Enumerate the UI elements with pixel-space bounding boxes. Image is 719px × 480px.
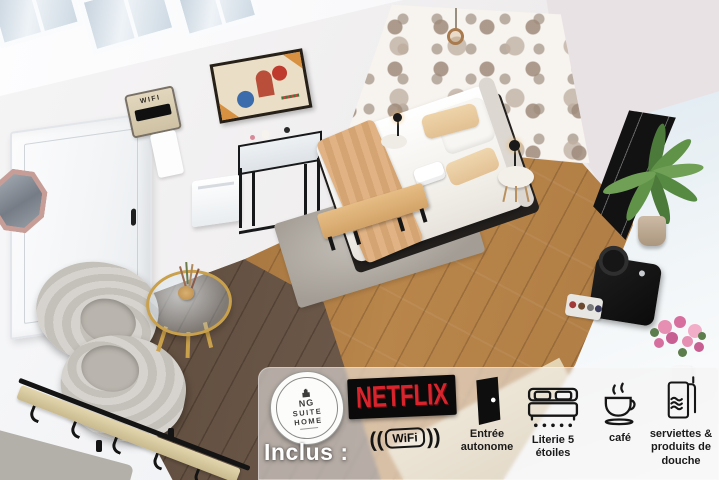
art-squiggle xyxy=(281,94,299,100)
table-lamp xyxy=(397,120,399,136)
electric-heater xyxy=(192,175,240,228)
listing-photo: WIFI xyxy=(0,0,719,480)
window-mullion xyxy=(212,0,226,24)
flower xyxy=(654,338,664,348)
amenity-towels: serviettes & produits de douche xyxy=(643,373,719,477)
wifi-logo: (( WiFi )) xyxy=(351,420,458,456)
amenity-label: café xyxy=(609,432,631,445)
badge-divider xyxy=(300,427,318,430)
amenity-icon-wrap xyxy=(468,373,506,425)
coffee-capsule xyxy=(586,304,594,312)
brand-logo-ring: NG SUITE HOME xyxy=(273,374,341,442)
amenity-icon-wrap xyxy=(597,377,643,429)
coat-hook xyxy=(151,453,167,471)
coat-hook xyxy=(69,421,85,439)
pendant-cord xyxy=(455,8,457,30)
table-lamp-shade xyxy=(393,113,402,122)
skylight-window xyxy=(0,0,84,49)
decor-object xyxy=(284,127,290,133)
amenity-bedding: Literie 5 étoiles xyxy=(515,373,591,477)
nightstand-leg xyxy=(515,186,517,202)
wifi-signal-arcs-left: (( xyxy=(369,429,384,451)
amenity-icon-wrap xyxy=(660,373,702,425)
amenity-self-checkin: Entrée autonome xyxy=(452,373,522,477)
flower-leaf xyxy=(650,328,659,337)
potted-palm-plant xyxy=(604,116,704,252)
console-table-leg xyxy=(239,168,242,228)
flower xyxy=(666,332,678,344)
table-lamp-shade xyxy=(509,140,520,151)
art-blue-circle xyxy=(236,90,256,110)
skylight-window xyxy=(78,0,179,55)
amenity-label: serviettes & produits de douche xyxy=(643,428,719,468)
amenity-label: Entrée autonome xyxy=(452,428,522,455)
coat-hook xyxy=(28,405,44,423)
flower-leaf xyxy=(678,348,687,357)
pendant-light xyxy=(447,28,464,45)
netflix-logo: NETFLIX xyxy=(347,375,457,420)
towel-icon xyxy=(660,375,702,425)
netflix-logo-text: NETFLIX xyxy=(355,378,448,417)
coffee-capsule xyxy=(578,302,586,310)
wifi-signal-arcs-right: )) xyxy=(426,426,441,448)
flower-leaf xyxy=(698,332,706,340)
amenity-icon-wrap xyxy=(526,379,580,431)
coffee-cup-icon xyxy=(597,381,643,429)
mirror-glass xyxy=(0,172,44,230)
heater-vent xyxy=(198,181,234,189)
wifi-logo-text: WiFi xyxy=(385,427,425,449)
plant-pot xyxy=(638,216,666,246)
amenity-coffee: café xyxy=(589,373,651,477)
brand-name-line3: HOME xyxy=(294,416,323,428)
art-triangle xyxy=(219,101,239,121)
included-label: Inclus : xyxy=(264,439,349,466)
decor-vase xyxy=(262,130,269,139)
window-mullion xyxy=(121,0,138,38)
brand-logo-badge: NG SUITE HOME xyxy=(266,367,347,448)
flower xyxy=(682,336,693,347)
armchair-seat xyxy=(77,341,142,396)
amenity-label: Literie 5 étoiles xyxy=(515,434,591,461)
amenities-banner: NG SUITE HOME Inclus : NETFLIX (( WiFi )… xyxy=(258,367,719,480)
wifi-password-strip xyxy=(134,103,171,121)
coffee-capsule xyxy=(594,305,602,313)
coat-hook xyxy=(110,437,126,455)
flower xyxy=(694,342,704,352)
skylight-window xyxy=(173,0,261,40)
nightstand xyxy=(381,134,407,149)
door-handle xyxy=(131,208,136,226)
window-mullion xyxy=(29,0,45,32)
decor-object xyxy=(250,135,255,140)
door-icon xyxy=(468,375,506,425)
flower xyxy=(674,316,686,328)
console-table-leg xyxy=(304,164,307,220)
nightstand xyxy=(498,166,534,188)
coffee-capsule xyxy=(569,301,577,309)
bed-icon xyxy=(526,387,580,431)
gold-vase xyxy=(178,286,194,300)
console-table-leg xyxy=(252,172,255,226)
